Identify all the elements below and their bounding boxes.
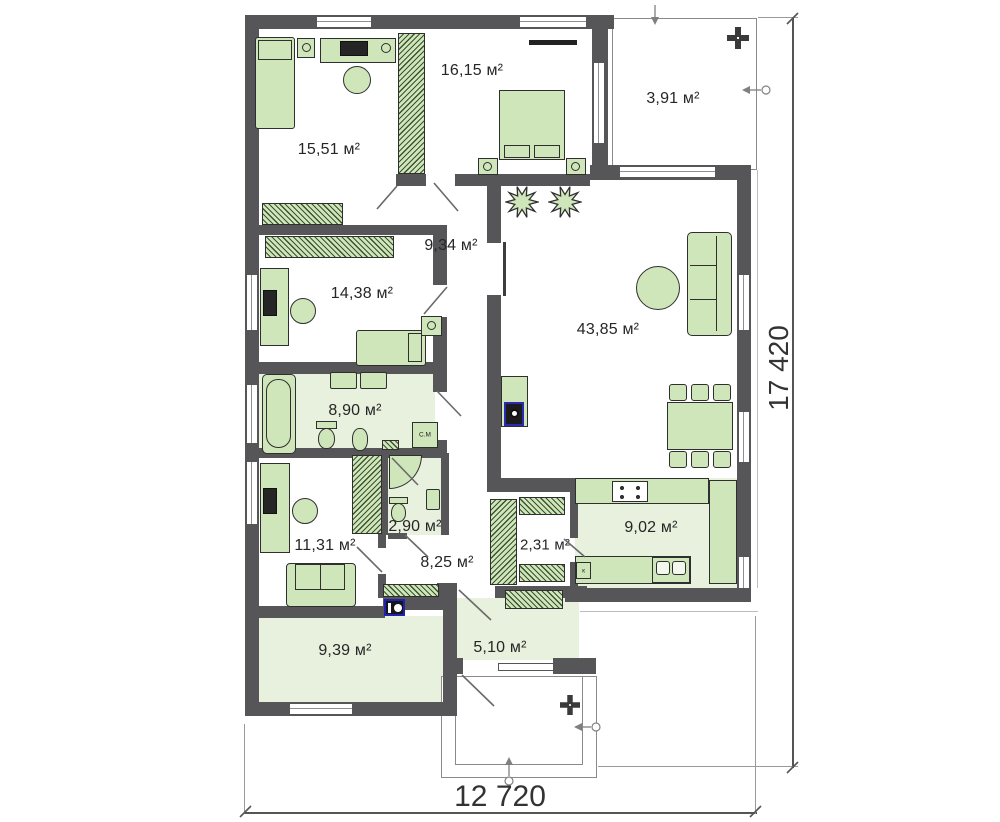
sofa-cushion-line: [320, 564, 321, 590]
window: [245, 462, 259, 524]
room-area-label: 3,91 м²: [646, 90, 699, 108]
lamp-icon: [302, 43, 311, 52]
pillow-icon: [534, 145, 560, 158]
plant-icon: [548, 186, 582, 218]
kitchen-cabinet-column: [709, 480, 737, 584]
wall-segment: [371, 15, 520, 29]
wall-segment: [715, 165, 751, 180]
window: [737, 275, 751, 330]
boiler-slit: [388, 603, 391, 613]
roof-edge-line: [757, 170, 758, 588]
wardrobe-icon: [262, 203, 343, 225]
window: [245, 275, 259, 330]
sofa-cushion-line: [690, 265, 717, 266]
coffee-table-icon: [636, 266, 680, 310]
toilet-icon: [318, 428, 335, 449]
compass-icon: [560, 695, 580, 715]
wall-segment: [455, 174, 590, 186]
room-area-label: 16,15 м²: [441, 62, 503, 80]
pantry-shelf-icon: [519, 564, 565, 582]
extension-line: [755, 616, 756, 814]
dining-chair-icon: [691, 384, 709, 401]
room-area-label: 9,02 м²: [624, 519, 677, 537]
window: [737, 412, 751, 462]
room-area-label: 2,31 м²: [520, 537, 570, 554]
room-area-label: 11,31 м²: [294, 537, 355, 555]
utility-room-floor: [259, 616, 445, 704]
room-area-label: 14,38 м²: [331, 285, 393, 303]
room-area-label: 9,39 м²: [318, 642, 371, 660]
stove-icon: [612, 481, 648, 502]
dining-chair-icon: [669, 451, 687, 468]
dimension-height-label: 17 420: [763, 325, 795, 411]
room-area-label: 5,10 м²: [473, 639, 526, 657]
wall-segment: [487, 180, 501, 243]
chair-icon: [292, 498, 318, 524]
wardrobe-icon: [398, 33, 425, 174]
lamp-icon: [427, 321, 436, 330]
pillow-icon: [408, 333, 422, 362]
washing-machine-icon: С.М: [412, 422, 438, 448]
wall-segment: [443, 598, 457, 702]
sink-icon: [360, 372, 387, 389]
wall-segment: [487, 295, 501, 480]
sofa-cushion-line: [690, 299, 717, 300]
wall-segment: [352, 702, 457, 716]
terrace-door-window: [620, 165, 715, 180]
kitchen-unit-label: к: [577, 567, 590, 574]
dining-chair-icon: [713, 384, 731, 401]
wall-segment: [433, 225, 447, 285]
dining-chair-icon: [713, 451, 731, 468]
shoe-shelf-icon: [383, 584, 439, 597]
wall-segment: [378, 533, 386, 548]
wall-segment: [487, 478, 587, 492]
room-area-label: 9,34 м²: [424, 237, 477, 255]
washing-machine-label: С.М: [413, 432, 437, 439]
sink-basin: [656, 561, 670, 575]
boiler-icon: [384, 599, 405, 616]
roof-edge-line: [580, 611, 758, 612]
sofa-back-line: [716, 236, 717, 331]
extension-line: [598, 766, 798, 767]
wall-segment: [737, 462, 751, 557]
entry-sliding-door: [498, 663, 554, 671]
wardrobe-icon: [352, 455, 382, 534]
pillow-icon: [258, 40, 292, 60]
room-area-label: 2,90 м²: [388, 518, 441, 536]
computer-icon: [263, 488, 277, 514]
computer-icon: [340, 41, 368, 56]
hall-wardrobe-icon: [505, 590, 563, 609]
dining-chair-icon: [691, 451, 709, 468]
door-leaf: [503, 242, 506, 296]
window: [245, 385, 259, 443]
room-area-label: 15,51 м²: [298, 141, 360, 159]
tv-icon: [529, 40, 577, 45]
room-area-label: 43,85 м²: [577, 321, 639, 339]
dimension-width-label: 12 720: [454, 780, 546, 814]
wall-segment: [433, 362, 447, 392]
wall-segment: [245, 524, 259, 716]
lamp-icon: [483, 162, 492, 171]
porch-outline-inner: [455, 676, 583, 765]
wardrobe-icon: [490, 499, 517, 585]
wall-segment: [592, 15, 608, 63]
wall-segment: [737, 330, 751, 412]
wall-segment: [245, 702, 290, 716]
wall-segment: [590, 165, 620, 180]
window: [290, 702, 352, 716]
sofa-icon: [687, 232, 732, 336]
stove-door: [510, 409, 519, 418]
sink-basin: [672, 561, 686, 575]
desk-lamp-icon: [381, 43, 391, 53]
wall-segment: [737, 180, 751, 275]
wall-segment: [437, 583, 457, 598]
dining-table-icon: [667, 402, 733, 450]
computer-icon: [263, 290, 277, 316]
wall-segment: [443, 658, 463, 674]
bath-mat-icon: [382, 440, 399, 450]
sofa-icon: [286, 563, 356, 607]
sink-icon: [330, 372, 357, 389]
wall-segment: [245, 330, 259, 385]
extension-line: [758, 17, 798, 18]
lamp-icon: [571, 162, 580, 171]
wall-segment: [565, 588, 751, 602]
sink-icon: [426, 489, 440, 510]
floor-plan: С.М к: [0, 0, 1000, 822]
room-area-label: 8,25 м²: [420, 554, 473, 572]
terrace-window: [592, 63, 608, 143]
boiler-drum: [394, 604, 402, 612]
wall-segment: [553, 658, 596, 674]
stove-insert-icon: [504, 402, 524, 426]
room-area-label: 8,90 м²: [328, 402, 381, 420]
chair-icon: [290, 298, 316, 324]
window: [520, 15, 586, 29]
extension-line: [244, 724, 245, 814]
dining-chair-icon: [669, 384, 687, 401]
wall-segment: [396, 174, 426, 186]
pillow-icon: [504, 145, 530, 158]
plant-icon: [505, 186, 539, 218]
wardrobe-icon: [265, 236, 394, 258]
chair-icon: [343, 66, 371, 94]
kitchen-unit-icon: к: [576, 562, 591, 579]
pantry-shelf-icon: [519, 497, 565, 515]
compass-icon: [727, 27, 749, 49]
window: [317, 15, 371, 29]
bathtub-inner: [266, 379, 291, 448]
kitchen-sink-icon: [652, 557, 690, 583]
wall-segment: [381, 453, 388, 535]
bidet-icon: [352, 428, 368, 451]
wall-segment: [245, 225, 433, 235]
wall-segment: [245, 606, 385, 618]
wall-segment: [441, 453, 449, 535]
